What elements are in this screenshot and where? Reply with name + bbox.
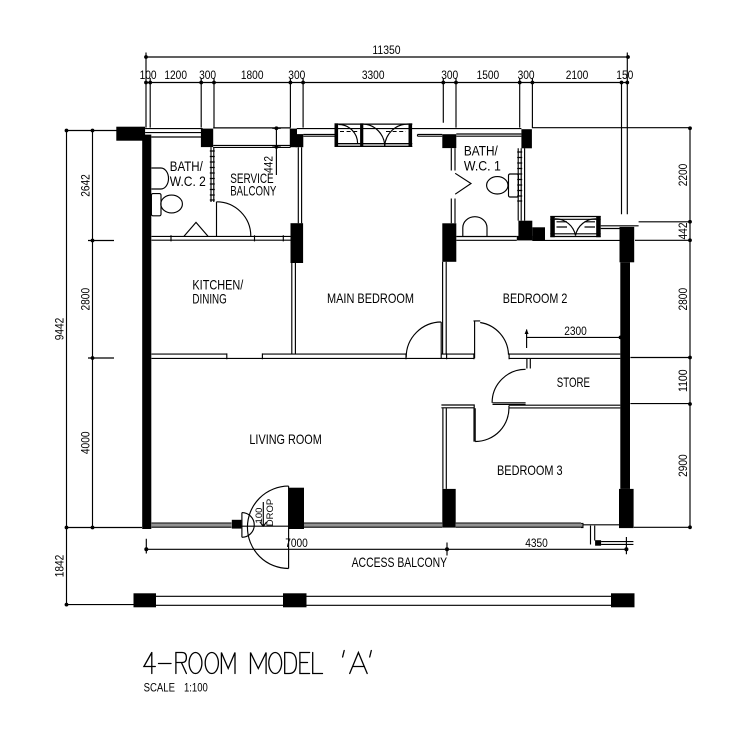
svg-text:LIVING ROOM: LIVING ROOM xyxy=(249,431,321,447)
svg-text:2900: 2900 xyxy=(678,454,690,477)
svg-text:300: 300 xyxy=(518,70,535,82)
svg-text:W.C. 2: W.C. 2 xyxy=(170,173,206,189)
svg-text:ACCESS BALCONY: ACCESS BALCONY xyxy=(352,554,448,570)
svg-text:4000: 4000 xyxy=(80,432,92,455)
svg-text:4350: 4350 xyxy=(525,538,548,550)
svg-text:MAIN BEDROOM: MAIN BEDROOM xyxy=(327,290,414,306)
svg-text:2800: 2800 xyxy=(678,288,690,311)
svg-text:300: 300 xyxy=(288,70,305,82)
svg-text:BEDROOM 2: BEDROOM 2 xyxy=(503,290,568,306)
svg-text:1200: 1200 xyxy=(164,70,187,82)
svg-text:1500: 1500 xyxy=(477,70,500,82)
svg-text:150: 150 xyxy=(616,70,633,82)
svg-text:BATH/: BATH/ xyxy=(170,158,203,174)
svg-text:BEDROOM 3: BEDROOM 3 xyxy=(497,462,563,478)
svg-text:1842: 1842 xyxy=(54,555,66,578)
svg-text:2642: 2642 xyxy=(80,174,92,197)
svg-text:9442: 9442 xyxy=(54,318,66,341)
svg-text:DINING: DINING xyxy=(192,291,226,307)
svg-text:1100: 1100 xyxy=(678,369,690,392)
svg-text:100: 100 xyxy=(140,70,157,82)
svg-text:300: 300 xyxy=(441,70,458,82)
svg-text:7000: 7000 xyxy=(285,538,308,550)
svg-text:3300: 3300 xyxy=(362,70,385,82)
svg-text:2800: 2800 xyxy=(80,288,92,311)
svg-text:442: 442 xyxy=(678,223,690,240)
svg-text:1:100: 1:100 xyxy=(184,683,208,695)
svg-text:2100: 2100 xyxy=(566,70,589,82)
svg-text:BALCONY: BALCONY xyxy=(230,182,277,198)
svg-text:W.C. 1: W.C. 1 xyxy=(464,157,501,173)
svg-text:2200: 2200 xyxy=(678,164,690,187)
svg-text:STORE: STORE xyxy=(557,374,590,390)
svg-text:2300: 2300 xyxy=(564,326,587,338)
svg-text:BATH/: BATH/ xyxy=(464,143,498,159)
svg-text:SCALE: SCALE xyxy=(144,683,176,695)
svg-text:1800: 1800 xyxy=(241,70,264,82)
svg-text:300: 300 xyxy=(199,70,216,82)
svg-text:11350: 11350 xyxy=(372,45,400,57)
